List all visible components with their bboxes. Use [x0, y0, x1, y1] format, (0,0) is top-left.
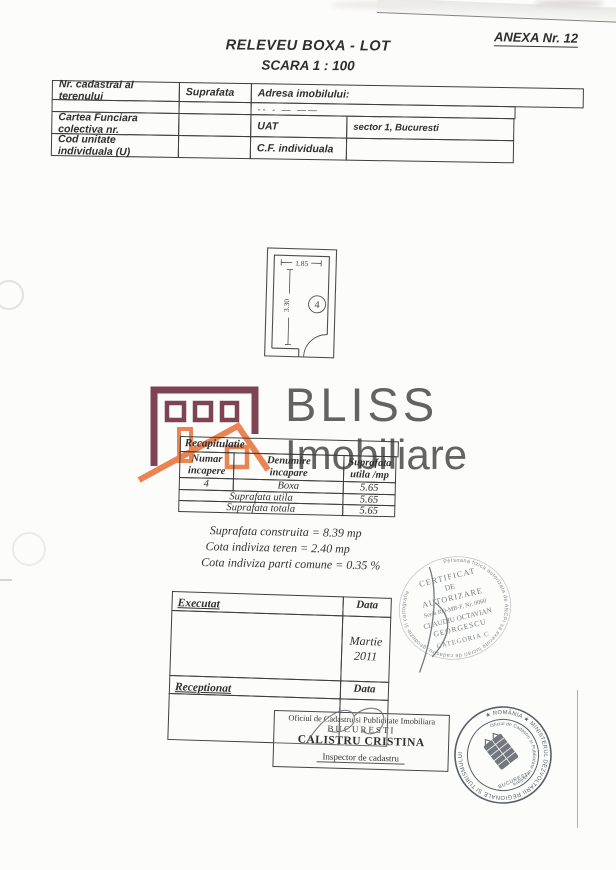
scan-smudge — [330, 1, 440, 9]
document-scale: SCARA 1 : 100 — [0, 56, 616, 75]
hole-punch-mark — [12, 532, 46, 566]
cell-suprafata-totala-value: 5.65 — [342, 504, 395, 517]
room-number: 4 — [314, 300, 319, 311]
cert-line2: DE — [444, 581, 456, 592]
coat-of-arms-emblem — [481, 730, 519, 770]
cell-cf-individuala: C.F. individuala — [250, 136, 347, 161]
signature-scribble — [298, 700, 428, 748]
header-numar-incapere: Numarincapere — [179, 451, 235, 479]
table-row: Martie 2011 — [169, 610, 392, 682]
cell-empty — [346, 138, 514, 164]
summary-line: Cota indiviza parti comune = 0.35 % — [201, 554, 380, 573]
scanned-document-page: ANEXA Nr. 12 RELEVEU BOXA - LOT SCARA 1 … — [0, 0, 616, 870]
header-denumire-incapere: Denumireincapare — [233, 452, 345, 482]
dim-height-label: 3.30 — [282, 299, 291, 313]
cadastral-header-table: Nr. cadastral al terenului Suprafata Adr… — [51, 80, 586, 163]
area-summary: Suprafata construita = 8.39 mp Cota indi… — [201, 522, 381, 573]
cell-executat-blank — [169, 610, 343, 681]
logo-window — [222, 403, 237, 420]
scan-dash-mark — [0, 579, 12, 581]
cell-cod-unitate: Cod unitate individuala (U) — [51, 133, 179, 158]
header-suprafata-utila: Suprafatautila /mp — [343, 455, 397, 483]
logo-window — [195, 403, 211, 420]
document-title: RELEVEU BOXA - LOT — [0, 36, 616, 56]
dim-width-label: 1.85 — [295, 259, 309, 268]
cell-suprafata: Suprafata — [179, 82, 252, 103]
logo-window — [167, 403, 184, 420]
wall-bottom — [272, 348, 299, 357]
certificat-autorizare-stamp: Persoana fizica autorizata de ANCPI sa e… — [380, 533, 530, 683]
cell-date-value: Martie 2011 — [340, 615, 391, 683]
paper-fold-line — [577, 690, 578, 828]
round-ministry-stamp: ★ ROMÂNIA ★ MINISTERUL DEZVOLTARII REGIO… — [434, 686, 571, 823]
scan-smudge — [534, 0, 604, 7]
cell-empty — [178, 113, 251, 137]
recapitulatie-table: Recapitulatie Numarincapere Denumireinca… — [178, 436, 399, 516]
cell-empty — [178, 135, 251, 159]
hole-punch-mark — [0, 280, 24, 310]
cell-uat: UAT — [250, 114, 347, 139]
door-arc — [304, 334, 328, 358]
floorplan-drawing: 1.85 3.30 4 — [248, 240, 362, 373]
inspector-role: Inspector de cadastru — [316, 751, 405, 764]
logo-text-bliss: BLISS — [285, 381, 438, 428]
